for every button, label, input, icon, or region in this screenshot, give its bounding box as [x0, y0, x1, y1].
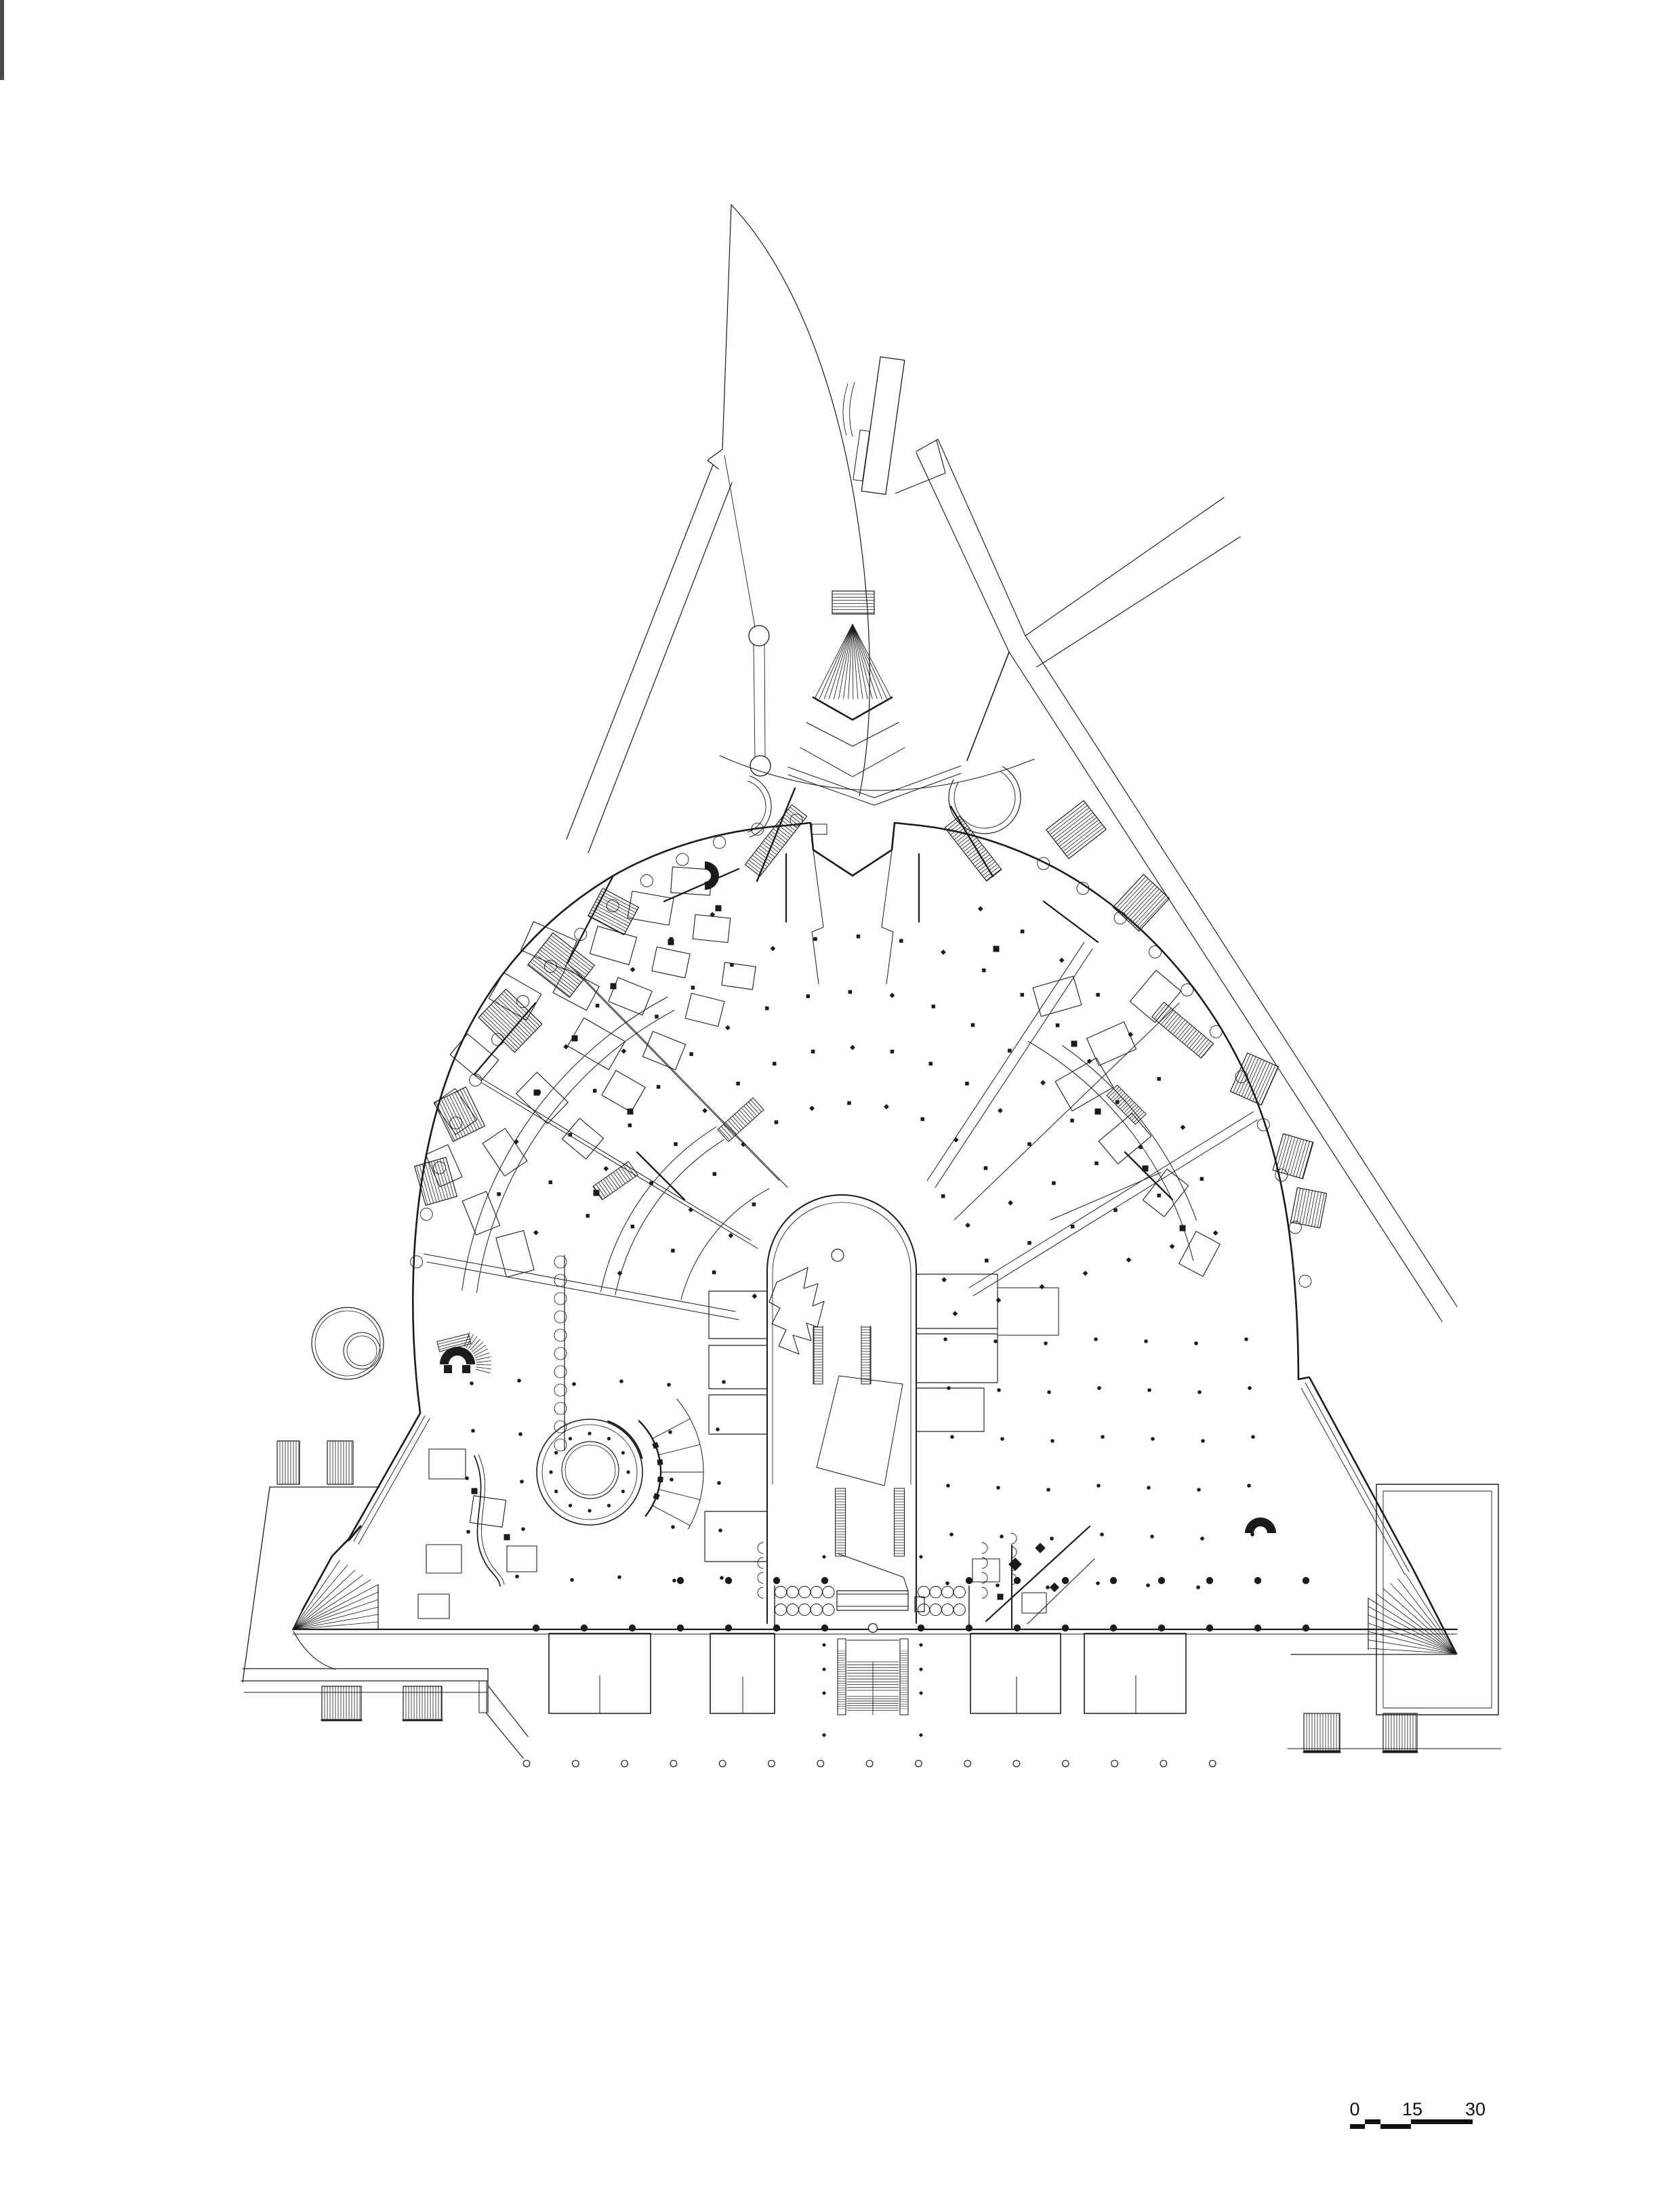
scale-label-30: 30 — [1465, 2099, 1486, 2119]
scale-bar-segment — [1380, 2124, 1411, 2129]
scale-bar-segment — [1350, 2124, 1365, 2129]
scale-bar-segment — [1365, 2119, 1380, 2124]
scale-bar-segment — [1411, 2119, 1473, 2124]
floor-plan-canvas: 0 15 30 — [0, 0, 1680, 2198]
drawing-sheet: 0 15 30 — [0, 0, 1680, 2198]
scale-label-15: 15 — [1402, 2099, 1422, 2119]
scan-edge-artifact — [0, 0, 4, 80]
paper-background — [0, 0, 1680, 2198]
scale-label-0: 0 — [1349, 2099, 1359, 2119]
